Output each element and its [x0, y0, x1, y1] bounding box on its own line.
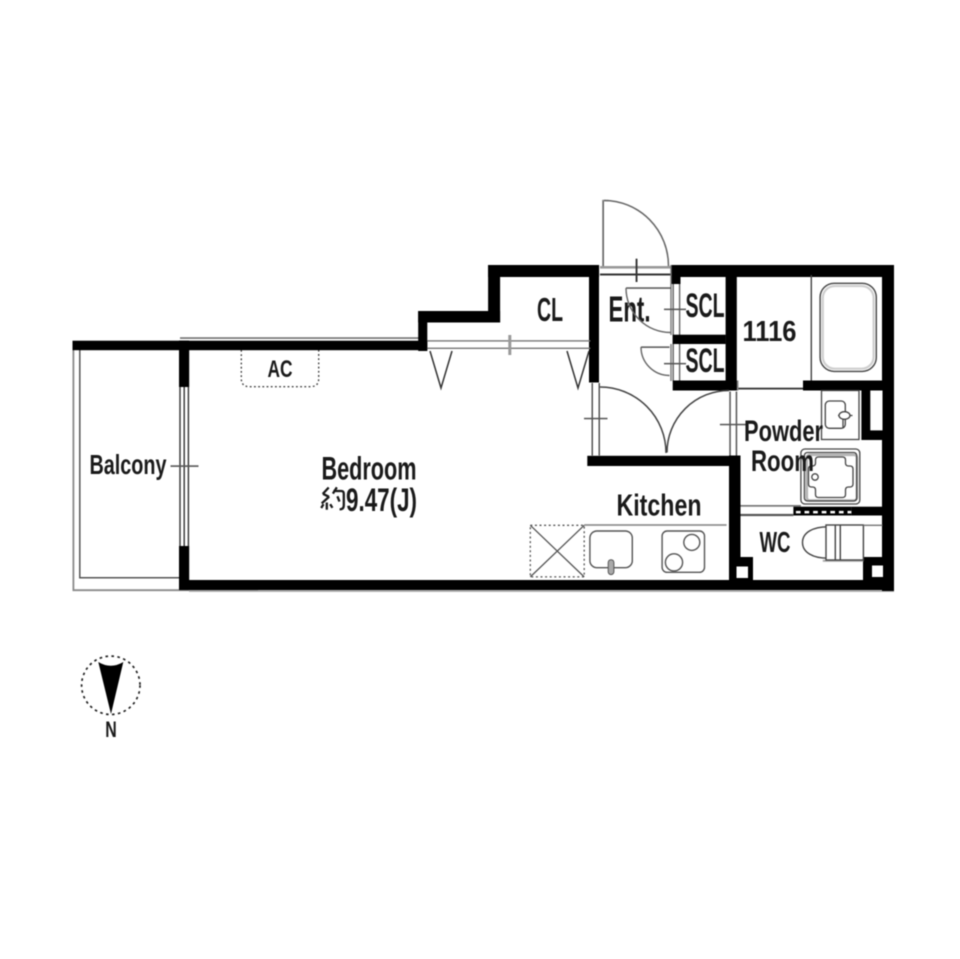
- svg-text:Room: Room: [751, 445, 814, 478]
- svg-text:WC: WC: [760, 527, 791, 559]
- svg-text:9.47(J): 9.47(J): [346, 482, 417, 518]
- svg-text:SCL: SCL: [686, 287, 725, 325]
- svg-text:N: N: [105, 717, 117, 742]
- svg-text:AC: AC: [268, 356, 293, 383]
- svg-text:CL: CL: [537, 291, 563, 328]
- svg-text:Powder: Powder: [744, 415, 823, 448]
- svg-text:Balcony: Balcony: [90, 449, 168, 480]
- svg-text:SCL: SCL: [686, 342, 725, 380]
- svg-text:Kitchen: Kitchen: [617, 488, 702, 523]
- svg-text:1116: 1116: [743, 316, 797, 348]
